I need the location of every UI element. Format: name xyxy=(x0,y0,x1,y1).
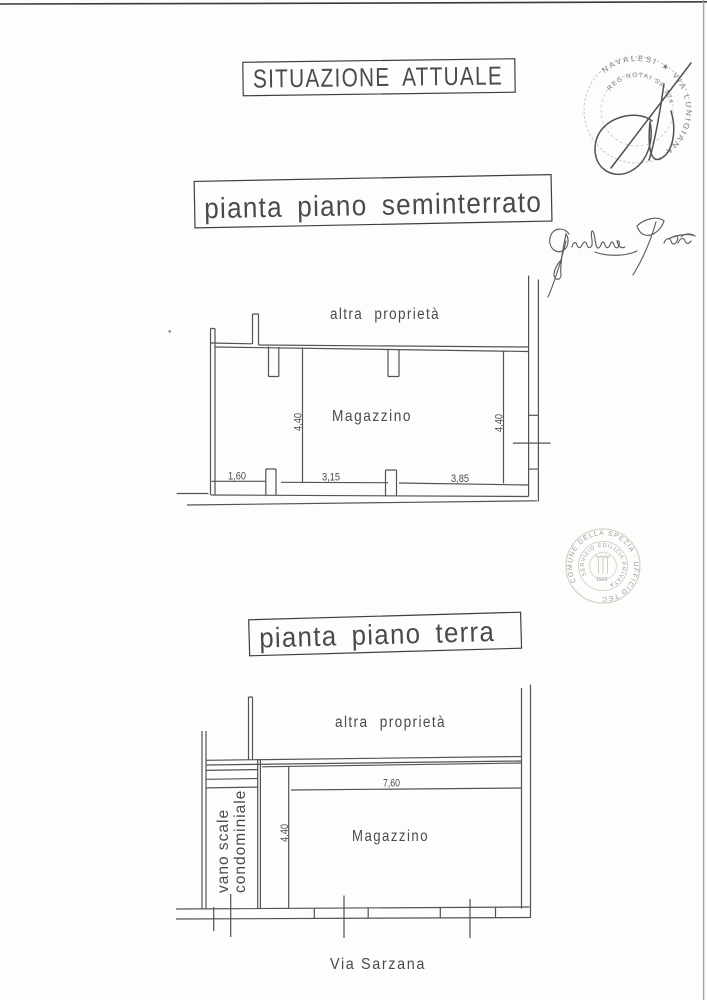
svg-text:7,60: 7,60 xyxy=(383,778,400,790)
svg-text:vano scale: vano scale xyxy=(215,809,232,893)
svg-text:pianta piano seminterrato: pianta piano seminterrato xyxy=(204,187,543,225)
svg-text:3,85: 3,85 xyxy=(451,473,469,485)
svg-text:Magazzino: Magazzino xyxy=(352,828,429,845)
svg-text:1923: 1923 xyxy=(596,577,607,583)
svg-text:SITUAZIONE ATTUALE: SITUAZIONE ATTUALE xyxy=(253,60,503,93)
svg-text:1,60: 1,60 xyxy=(228,471,246,483)
svg-text:REG NOTAI SP 124: REG NOTAI SP 124 xyxy=(606,72,674,105)
svg-text:4,40: 4,40 xyxy=(494,414,506,432)
svg-text:condominiale: condominiale xyxy=(232,790,249,893)
svg-text:4,40: 4,40 xyxy=(293,413,305,431)
svg-text:altra proprietà: altra proprietà xyxy=(335,714,446,731)
svg-text:NAVALESI ★ VIA LUNIGIANA: NAVALESI ★ VIA LUNIGIANA xyxy=(600,54,693,157)
svg-text:Magazzino: Magazzino xyxy=(332,408,412,425)
svg-text:altra proprietà: altra proprietà xyxy=(330,306,440,323)
svg-text:4,40: 4,40 xyxy=(279,824,291,842)
svg-text:3,15: 3,15 xyxy=(322,472,340,484)
svg-text:pianta piano terra: pianta piano terra xyxy=(259,616,496,654)
svg-text:Via Sarzana: Via Sarzana xyxy=(330,956,426,973)
